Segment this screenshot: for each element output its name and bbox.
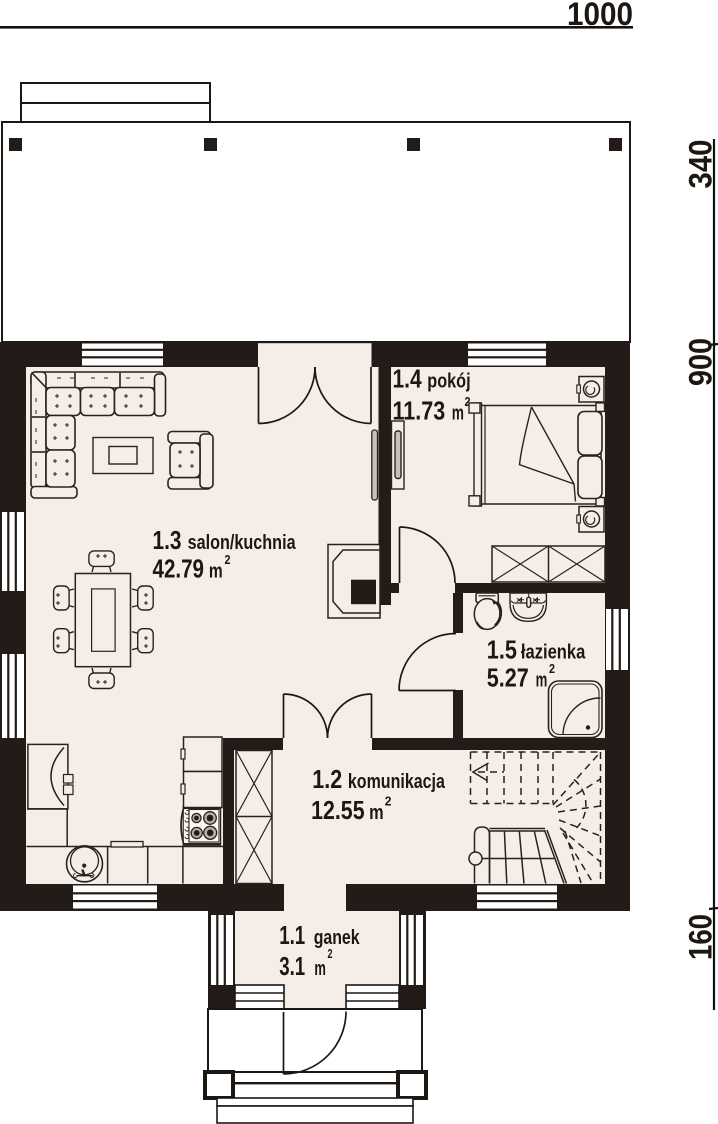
svg-text:ganek: ganek <box>314 926 360 949</box>
svg-text:łazienka: łazienka <box>521 640 586 663</box>
svg-text:1.4: 1.4 <box>393 364 423 394</box>
svg-text:1.2: 1.2 <box>312 764 342 794</box>
svg-text:2: 2 <box>225 552 231 567</box>
svg-text:1.5: 1.5 <box>487 634 517 664</box>
svg-text:m: m <box>209 560 223 583</box>
svg-text:2: 2 <box>385 794 392 809</box>
svg-text:42.79: 42.79 <box>153 554 205 584</box>
svg-text:1.3: 1.3 <box>153 525 182 555</box>
svg-text:salon/kuchnia: salon/kuchnia <box>188 531 296 554</box>
svg-text:900: 900 <box>683 338 718 386</box>
svg-text:m: m <box>369 801 384 824</box>
svg-text:5.27: 5.27 <box>487 663 529 693</box>
svg-text:m: m <box>452 402 464 425</box>
svg-text:pokój: pokój <box>427 370 470 393</box>
svg-text:340: 340 <box>683 140 718 189</box>
svg-text:m: m <box>314 957 326 980</box>
svg-text:1.1: 1.1 <box>279 920 305 950</box>
svg-text:1000: 1000 <box>567 0 633 32</box>
svg-text:12.55: 12.55 <box>311 795 365 825</box>
svg-text:2: 2 <box>328 946 333 961</box>
svg-text:komunikacja: komunikacja <box>348 770 445 793</box>
svg-text:2: 2 <box>549 661 555 676</box>
svg-text:3.1: 3.1 <box>279 951 305 981</box>
svg-text:m: m <box>536 669 548 692</box>
svg-text:160: 160 <box>683 914 718 960</box>
